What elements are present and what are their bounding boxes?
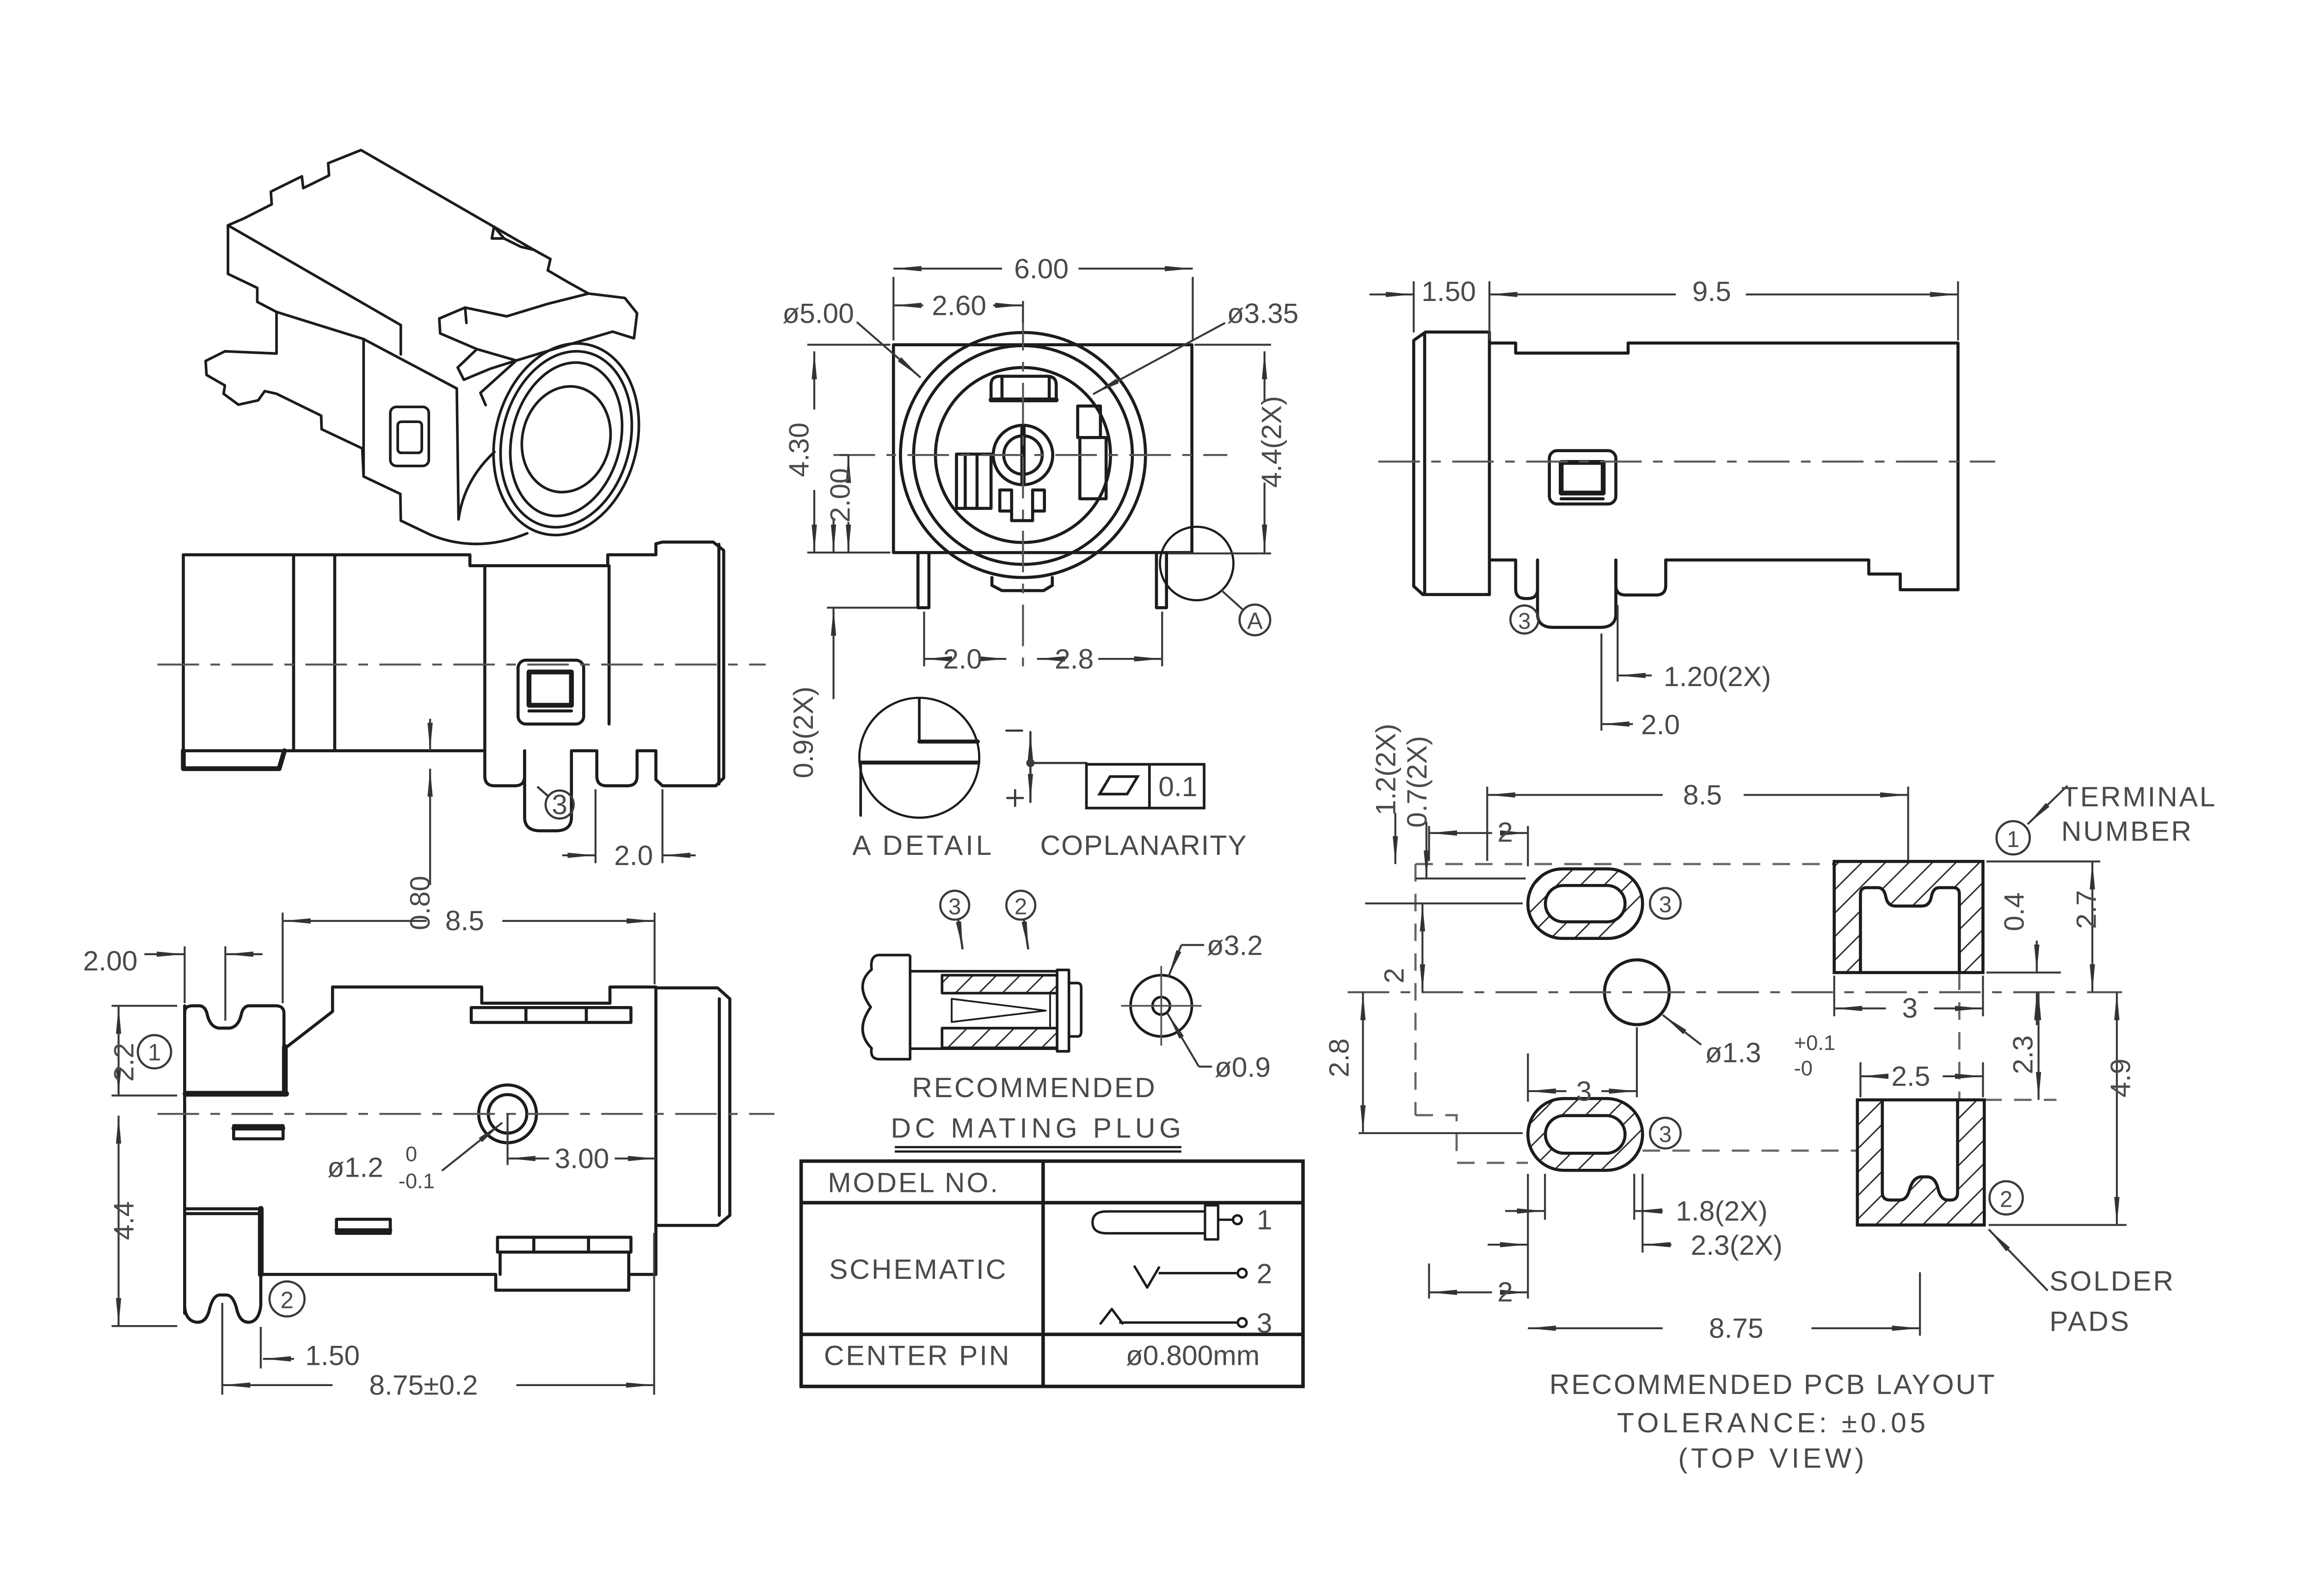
svg-text:2: 2 bbox=[1015, 894, 1027, 920]
svg-text:2.00: 2.00 bbox=[83, 945, 138, 976]
svg-text:CENTER PIN: CENTER PIN bbox=[824, 1339, 1011, 1371]
svg-text:3: 3 bbox=[1659, 1122, 1672, 1147]
svg-text:2: 2 bbox=[281, 1287, 294, 1313]
svg-text:1.20(2X): 1.20(2X) bbox=[1664, 661, 1771, 692]
svg-text:2: 2 bbox=[1257, 1258, 1273, 1289]
svg-text:2.3(2X): 2.3(2X) bbox=[1691, 1229, 1783, 1261]
svg-text:0.80: 0.80 bbox=[404, 876, 436, 930]
svg-text:COPLANARITY: COPLANARITY bbox=[1040, 829, 1247, 861]
svg-text:SOLDER: SOLDER bbox=[2049, 1265, 2175, 1296]
svg-text:4.30: 4.30 bbox=[783, 423, 815, 477]
svg-text:0.9(2X): 0.9(2X) bbox=[787, 687, 819, 779]
svg-text:8.75±0.2: 8.75±0.2 bbox=[369, 1369, 478, 1401]
svg-text:ø0.9: ø0.9 bbox=[1215, 1051, 1271, 1083]
svg-text:2: 2 bbox=[1378, 968, 1410, 983]
svg-text:2.8: 2.8 bbox=[1055, 643, 1094, 675]
svg-text:3: 3 bbox=[1518, 608, 1531, 634]
svg-text:2.5: 2.5 bbox=[1891, 1061, 1930, 1092]
svg-text:RECOMMENDED: RECOMMENDED bbox=[912, 1072, 1156, 1103]
svg-text:TERMINAL: TERMINAL bbox=[2061, 781, 2217, 812]
svg-text:RECOMMENDED PCB LAYOUT: RECOMMENDED PCB LAYOUT bbox=[1550, 1369, 1997, 1400]
svg-text:0: 0 bbox=[406, 1142, 417, 1166]
svg-text:A DETAIL: A DETAIL bbox=[852, 829, 994, 861]
svg-text:1.8(2X): 1.8(2X) bbox=[1676, 1195, 1768, 1227]
svg-text:8.75: 8.75 bbox=[1709, 1313, 1764, 1344]
svg-text:1: 1 bbox=[2007, 827, 2019, 852]
svg-text:8.5: 8.5 bbox=[1683, 779, 1722, 810]
svg-text:2.0: 2.0 bbox=[614, 840, 653, 871]
svg-text:2.0: 2.0 bbox=[943, 643, 982, 675]
svg-text:3.00: 3.00 bbox=[555, 1143, 609, 1174]
svg-text:2: 2 bbox=[1497, 816, 1513, 848]
svg-text:4.4(2X): 4.4(2X) bbox=[1256, 396, 1287, 488]
svg-text:NUMBER: NUMBER bbox=[2061, 816, 2193, 847]
svg-text:(TOP VIEW): (TOP VIEW) bbox=[1678, 1443, 1868, 1474]
svg-text:3: 3 bbox=[552, 789, 567, 820]
svg-text:-0: -0 bbox=[1794, 1056, 1813, 1080]
svg-text:0.1: 0.1 bbox=[1158, 771, 1197, 802]
svg-text:4.9: 4.9 bbox=[2104, 1059, 2136, 1098]
svg-text:ø1.3: ø1.3 bbox=[1705, 1037, 1761, 1068]
svg-text:2.3: 2.3 bbox=[2007, 1035, 2038, 1074]
svg-text:2.00: 2.00 bbox=[824, 468, 856, 522]
svg-text:2.2: 2.2 bbox=[108, 1043, 140, 1081]
svg-text:1.50: 1.50 bbox=[305, 1339, 360, 1371]
svg-text:2.7: 2.7 bbox=[2071, 890, 2102, 929]
svg-text:MODEL NO.: MODEL NO. bbox=[828, 1167, 1000, 1198]
svg-text:1.50: 1.50 bbox=[1421, 276, 1476, 307]
svg-text:1: 1 bbox=[148, 1039, 161, 1066]
svg-text:3: 3 bbox=[1576, 1075, 1592, 1107]
svg-text:2.8: 2.8 bbox=[1323, 1038, 1354, 1077]
svg-text:0.7(2X): 0.7(2X) bbox=[1401, 736, 1433, 828]
svg-text:ø3.35: ø3.35 bbox=[1227, 297, 1298, 329]
svg-text:PADS: PADS bbox=[2049, 1306, 2131, 1337]
svg-text:1: 1 bbox=[1257, 1204, 1273, 1235]
svg-text:ø0.800mm: ø0.800mm bbox=[1126, 1339, 1260, 1371]
svg-text:3: 3 bbox=[1902, 992, 1918, 1024]
svg-text:SCHEMATIC: SCHEMATIC bbox=[829, 1253, 1008, 1285]
svg-text:2.0: 2.0 bbox=[1641, 709, 1680, 740]
svg-text:1.2(2X): 1.2(2X) bbox=[1370, 724, 1402, 816]
svg-text:6.00: 6.00 bbox=[1014, 253, 1069, 284]
svg-text:A: A bbox=[1247, 608, 1263, 634]
svg-text:0.4: 0.4 bbox=[1998, 892, 2029, 931]
svg-text:2.60: 2.60 bbox=[932, 289, 986, 321]
svg-text:9.5: 9.5 bbox=[1692, 276, 1731, 307]
svg-text:2: 2 bbox=[1497, 1276, 1513, 1307]
svg-text:3: 3 bbox=[948, 894, 961, 920]
svg-text:3: 3 bbox=[1659, 892, 1672, 917]
svg-text:8.5: 8.5 bbox=[445, 905, 484, 936]
svg-text:-0.1: -0.1 bbox=[399, 1169, 435, 1193]
svg-text:2: 2 bbox=[2000, 1187, 2012, 1212]
svg-text:ø1.2: ø1.2 bbox=[327, 1151, 383, 1183]
svg-text:ø5.00: ø5.00 bbox=[782, 297, 854, 329]
svg-text:4.4: 4.4 bbox=[108, 1201, 140, 1240]
svg-text:3: 3 bbox=[1257, 1307, 1273, 1338]
svg-text:+0.1: +0.1 bbox=[1794, 1031, 1836, 1055]
svg-text:DC MATING PLUG: DC MATING PLUG bbox=[891, 1112, 1185, 1143]
svg-text:ø3.2: ø3.2 bbox=[1207, 930, 1263, 961]
svg-text:TOLERANCE: ±0.05: TOLERANCE: ±0.05 bbox=[1617, 1407, 1929, 1438]
